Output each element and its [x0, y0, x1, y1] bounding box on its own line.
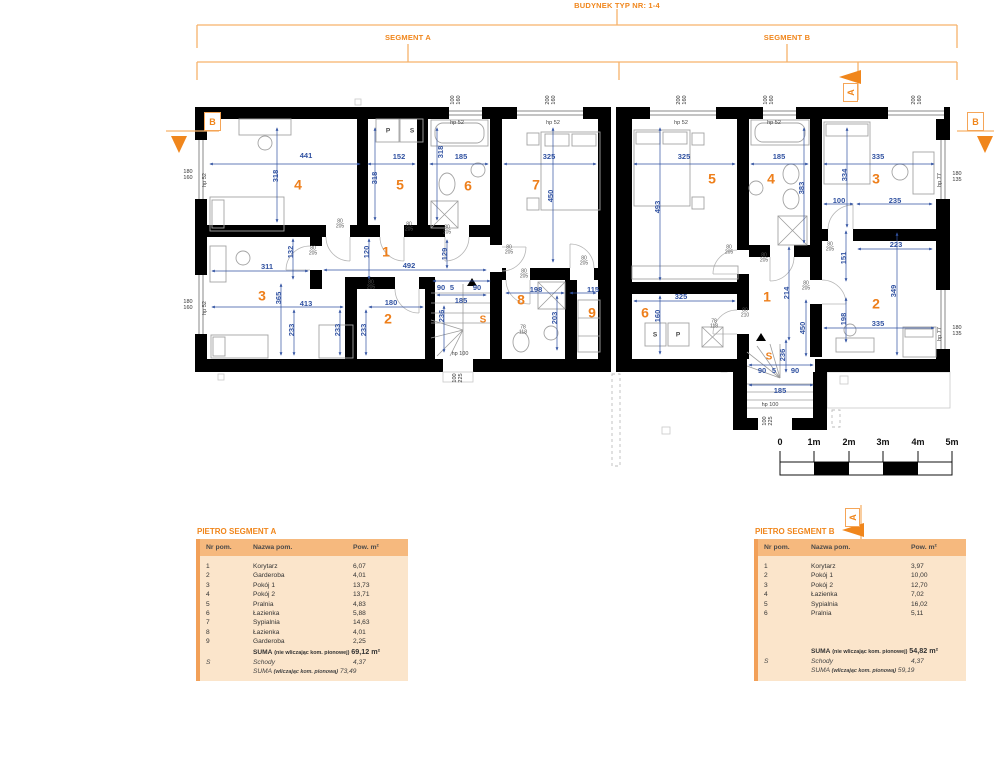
- room-area: 13,71: [353, 590, 408, 599]
- area-table-segment-a: PIETRO SEGMENT A Nr pom. Nazwa pom. Pow.…: [196, 527, 408, 681]
- suma2-row: SUMA (wliczając kom. pionową) 59,19: [758, 666, 966, 676]
- room-nr: 5: [758, 600, 811, 609]
- suma2-row: SUMA (wliczając kom. pionową) 73,49: [200, 667, 408, 677]
- schody-name: Schody: [253, 658, 353, 667]
- section-marker-a-bottom: A: [845, 508, 860, 527]
- room-nr: 9: [200, 637, 253, 646]
- room-area: 2,25: [353, 637, 408, 646]
- col-nr: Nr pom.: [758, 544, 811, 551]
- schody-nr: S: [200, 658, 253, 667]
- scale-bar: [780, 451, 952, 475]
- suma-note: (nie wliczając kom. pionowej): [832, 649, 907, 655]
- room-name: Korytarz: [253, 562, 353, 571]
- schody-row: S Schody 4,37: [758, 657, 966, 666]
- section-marker-a-top: A: [843, 83, 858, 102]
- col-name: Nazwa pom.: [811, 544, 911, 551]
- section-marker-b-left: B: [204, 112, 221, 131]
- suma2-label: SUMA: [253, 668, 272, 675]
- room-nr: 3: [200, 581, 253, 590]
- segment-a-label: SEGMENT A: [385, 33, 431, 42]
- room-name: Garderoba: [253, 637, 353, 646]
- room-area: 14,63: [353, 618, 408, 627]
- suma2-value: 73,49: [340, 668, 357, 675]
- room-name: Łazienka: [253, 628, 353, 637]
- room-nr: 3: [758, 581, 811, 590]
- schody-nr: S: [758, 657, 811, 666]
- room-area: 12,70: [911, 581, 966, 590]
- room-nr: 1: [200, 562, 253, 571]
- table-title: PIETRO SEGMENT A: [197, 527, 408, 536]
- section-marker-b-right: B: [967, 112, 984, 131]
- col-name: Nazwa pom.: [253, 544, 353, 551]
- table-rows: 1 Korytarz 3,97 2 Pokój 1 10,00 3 Pokój …: [758, 562, 966, 618]
- room-area: 13,73: [353, 581, 408, 590]
- room-name: Pokój 2: [811, 581, 911, 590]
- room-area: 3,97: [911, 562, 966, 571]
- room-name: Łazienka: [253, 609, 353, 618]
- table-row: 4 Pokój 2 13,71: [200, 590, 408, 599]
- room-nr: 5: [200, 600, 253, 609]
- schody-value: 4,37: [911, 657, 966, 666]
- room-nr: 8: [200, 628, 253, 637]
- room-name: Pralnia: [811, 609, 911, 618]
- room-name: Pralnia: [253, 600, 353, 609]
- suma-row: SUMA (nie wliczając kom. pionowej) 69,12…: [200, 647, 408, 658]
- table-rows: 1 Korytarz 6,07 2 Garderoba 4,01 3 Pokój…: [200, 562, 408, 647]
- header-brackets: [197, 9, 957, 80]
- suma-note: (nie wliczając kom. pionowej): [274, 650, 349, 656]
- floorplan-sheet: .wall{fill:#000;} .wgap{fill:#fff;} .glz…: [0, 0, 994, 768]
- suma-label: SUMA: [253, 649, 272, 656]
- table-body: 1 Korytarz 3,97 2 Pokój 1 10,00 3 Pokój …: [758, 556, 966, 681]
- suma-value: 54,82 m²: [909, 646, 938, 655]
- segment-b-label: SEGMENT B: [764, 33, 810, 42]
- room-name: Pokój 1: [811, 571, 911, 580]
- table-row: 7 Sypialnia 14,63: [200, 618, 408, 627]
- room-area: 4,01: [353, 628, 408, 637]
- room-area: 6,07: [353, 562, 408, 571]
- marker-letter: A: [846, 89, 856, 96]
- suma-value: 69,12 m²: [351, 647, 380, 656]
- room-nr: 1: [758, 562, 811, 571]
- marker-letter: B: [972, 117, 979, 127]
- table-sums: SUMA (nie wliczając kom. pionowej) 69,12…: [200, 647, 408, 682]
- schody-value: 4,37: [353, 658, 408, 667]
- table-row: 1 Korytarz 3,97: [758, 562, 966, 571]
- drawing-title: BUDYNEK TYP NR: 1-4: [574, 1, 660, 10]
- room-nr: 7: [200, 618, 253, 627]
- suma-label: SUMA: [811, 648, 830, 655]
- room-area: 10,00: [911, 571, 966, 580]
- suma2-value: 59,19: [898, 667, 915, 674]
- table-row: 5 Sypialnia 16,02: [758, 600, 966, 609]
- table-row: 9 Garderoba 2,25: [200, 637, 408, 646]
- room-area: 4,83: [353, 600, 408, 609]
- col-area: Pow. m²: [353, 544, 408, 551]
- schody-name: Schody: [811, 657, 911, 666]
- table-body: 1 Korytarz 6,07 2 Garderoba 4,01 3 Pokój…: [200, 556, 408, 681]
- table-row: 5 Pralnia 4,83: [200, 600, 408, 609]
- room-name: Garderoba: [253, 571, 353, 580]
- room-name: Korytarz: [811, 562, 911, 571]
- room-name: Łazienka: [811, 590, 911, 599]
- marker-letter: A: [848, 514, 858, 521]
- suma2-note: (wliczając kom. pionową): [832, 668, 896, 674]
- room-nr: 2: [200, 571, 253, 580]
- suma2-label: SUMA: [811, 667, 830, 674]
- room-area: 7,02: [911, 590, 966, 599]
- room-area: 4,01: [353, 571, 408, 580]
- table-header: Nr pom. Nazwa pom. Pow. m²: [758, 539, 966, 556]
- table-row: 4 Łazienka 7,02: [758, 590, 966, 599]
- col-area: Pow. m²: [911, 544, 966, 551]
- suma-row: SUMA (nie wliczając kom. pionowej) 54,82…: [758, 646, 966, 657]
- marker-letter: B: [209, 117, 216, 127]
- table-row: 8 Łazienka 4,01: [200, 628, 408, 637]
- table-row: 3 Pokój 1 13,73: [200, 581, 408, 590]
- room-nr: 6: [758, 609, 811, 618]
- room-nr: 4: [200, 590, 253, 599]
- table-sums: SUMA (nie wliczając kom. pionowej) 54,82…: [758, 646, 966, 681]
- room-nr: 4: [758, 590, 811, 599]
- room-nr: 2: [758, 571, 811, 580]
- schody-row: S Schody 4,37: [200, 658, 408, 667]
- room-name: Pokój 2: [253, 590, 353, 599]
- table-row: 2 Garderoba 4,01: [200, 571, 408, 580]
- table-row: 2 Pokój 1 10,00: [758, 571, 966, 580]
- room-name: Sypialnia: [811, 600, 911, 609]
- terrace-outline: [218, 99, 950, 466]
- room-name: Sypialnia: [253, 618, 353, 627]
- table-row: 3 Pokój 2 12,70: [758, 581, 966, 590]
- col-nr: Nr pom.: [200, 544, 253, 551]
- room-name: Pokój 1: [253, 581, 353, 590]
- table-row: 1 Korytarz 6,07: [200, 562, 408, 571]
- room-nr: 6: [200, 609, 253, 618]
- suma2-note: (wliczając kom. pionową): [274, 669, 338, 675]
- room-area: 16,02: [911, 600, 966, 609]
- area-table-segment-b: PIETRO SEGMENT B Nr pom. Nazwa pom. Pow.…: [754, 527, 966, 681]
- table-row: 6 Pralnia 5,11: [758, 609, 966, 618]
- table-header: Nr pom. Nazwa pom. Pow. m²: [200, 539, 408, 556]
- room-area: 5,11: [911, 609, 966, 618]
- table-title: PIETRO SEGMENT B: [755, 527, 966, 536]
- room-area: 5,88: [353, 609, 408, 618]
- table-row: 6 Łazienka 5,88: [200, 609, 408, 618]
